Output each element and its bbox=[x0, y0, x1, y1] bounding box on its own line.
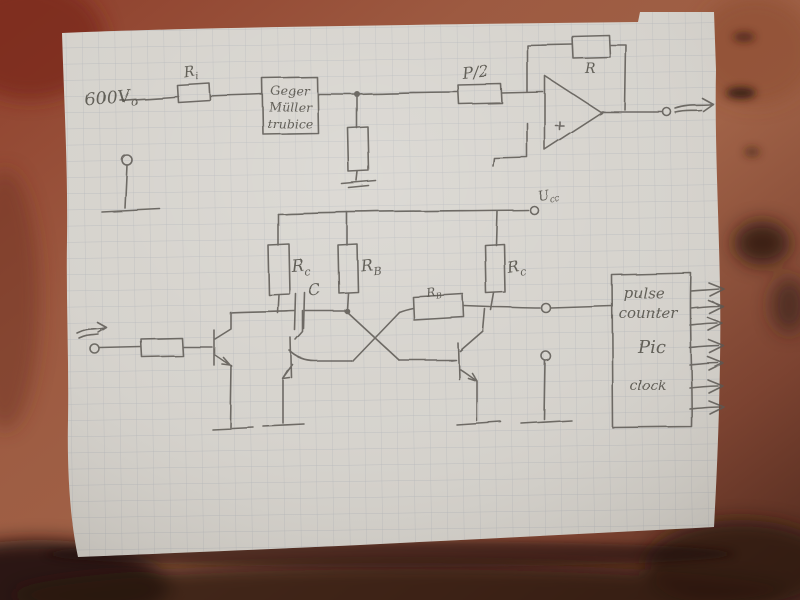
wire bbox=[100, 347, 141, 348]
geiger-line-1: Geger bbox=[271, 83, 311, 98]
counter-line-2: counter bbox=[619, 304, 679, 322]
wire bbox=[502, 92, 543, 93]
counter-line-4: clock bbox=[629, 378, 666, 394]
counter-line-1: pulse bbox=[624, 284, 665, 302]
schematic-photo-canvas: 600Vo Ri Geger Müller trubice P/2 R Ucc … bbox=[0, 0, 800, 600]
table-dark-spot bbox=[733, 32, 755, 42]
wire bbox=[347, 293, 348, 310]
wire bbox=[278, 295, 279, 313]
q3-base-bar bbox=[458, 343, 459, 379]
label-pot-p2: P/2 bbox=[460, 61, 489, 83]
geiger-line-2: Müller bbox=[268, 99, 312, 114]
label-feedback-r: R bbox=[584, 61, 596, 77]
table-dark-spot bbox=[744, 147, 760, 157]
junction-dot bbox=[354, 91, 360, 97]
counter-line-3: Pic bbox=[637, 337, 666, 358]
q2-base-bar bbox=[291, 338, 292, 378]
photo-hand-drawn-schematic: 600Vo Ri Geger Müller trubice P/2 R Ucc … bbox=[0, 0, 800, 600]
label-geiger-tube: Geger Müller trubice bbox=[267, 83, 312, 131]
wire bbox=[357, 172, 358, 181]
table-dark-spot bbox=[726, 87, 756, 99]
table-stain bbox=[734, 221, 790, 265]
geiger-line-3: trubice bbox=[267, 116, 312, 131]
